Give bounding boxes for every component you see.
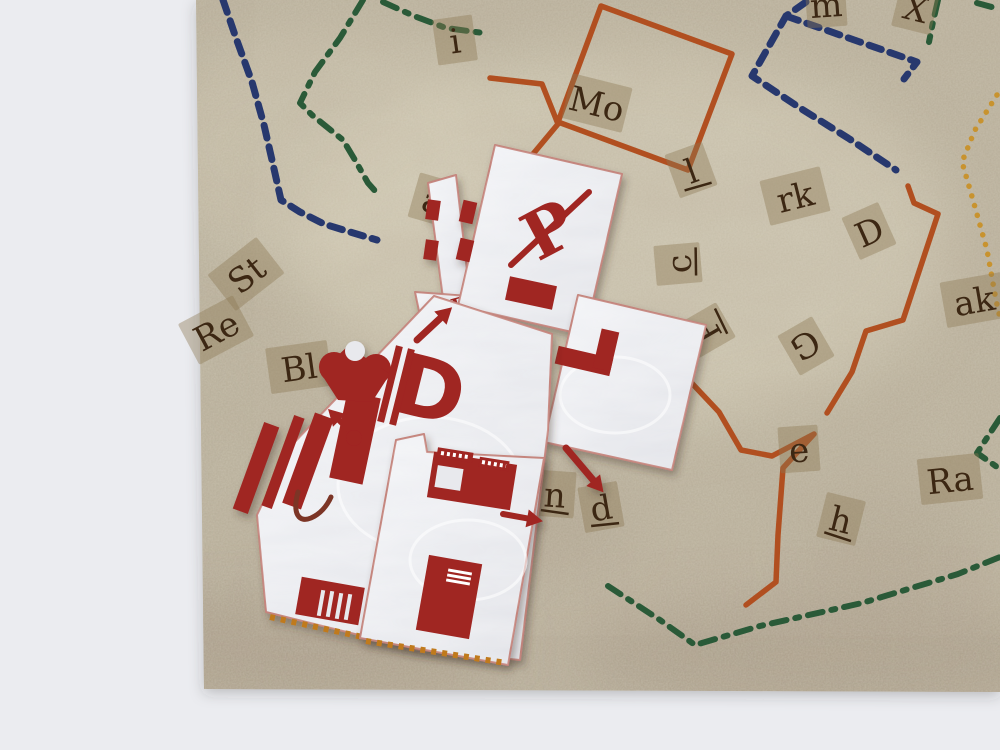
tile-letter: e (788, 430, 811, 471)
tile-letter: m (809, 0, 844, 27)
arrow-blob (346, 430, 362, 446)
letter-tile-i: i (432, 14, 478, 65)
tile-letter: ak (951, 279, 999, 326)
letter-tile-e: e (777, 425, 820, 474)
photo-papercraft-map-scene: mXiMolrkDcPGakaStReBlxndehRaEPD Photogra… (0, 0, 1000, 750)
wrench-notch (345, 341, 365, 361)
letter-tile-Ra: Ra (917, 453, 983, 505)
edge-notch (425, 199, 441, 221)
tile-letter: Ra (925, 459, 976, 504)
letter-tile-c: c (653, 242, 702, 286)
letter-tile-m: m (804, 0, 847, 28)
edge-notch (423, 239, 439, 261)
machine-window (434, 465, 463, 491)
scene-canvas: mXiMolrkDcPGakaStReBlxndehRaEPD (0, 0, 1000, 750)
tile-letter: Bl (279, 347, 320, 392)
